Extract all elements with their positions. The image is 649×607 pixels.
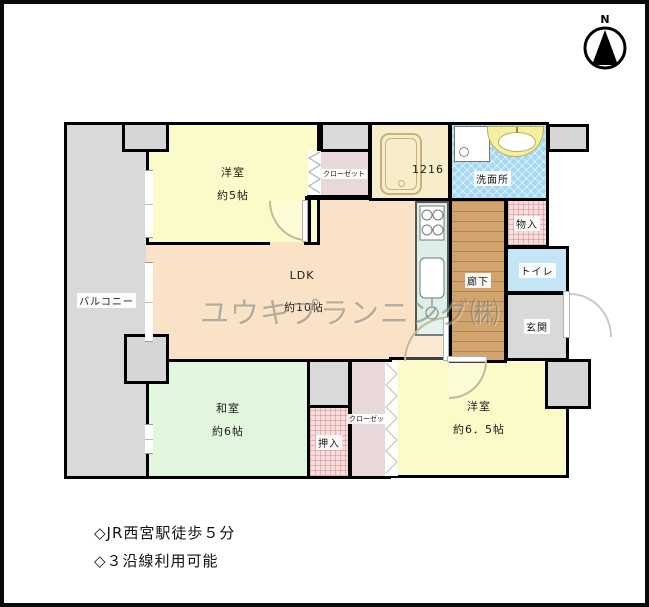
entrance-door-leaf: [563, 291, 570, 338]
pillar-top: [320, 122, 371, 152]
room-hallway: 廊下: [449, 198, 507, 363]
bath-size-label: 1216: [412, 163, 444, 176]
pillar-bottomright: [545, 359, 591, 409]
floorplan-canvas: N バルコニー LDK 約10帖 洋室 約5帖 和室 約6帖 洋室 約6．5帖 …: [0, 0, 649, 607]
door-opening: [270, 242, 304, 245]
note-station: ◇JR西宮駅徒歩５分: [94, 519, 235, 547]
door-swing-entrance: [570, 293, 612, 337]
watermark: ユウキプランニング㈱: [200, 290, 500, 332]
property-notes: ◇JR西宮駅徒歩５分 ◇３沿線利用可能: [94, 519, 235, 575]
japanese-room-size: 約6帖: [212, 423, 244, 439]
accordion-door-icon: [308, 151, 321, 196]
balcony-label: バルコニー: [77, 293, 136, 308]
entrance-label: 玄関: [524, 319, 550, 334]
accordion-door-icon: [385, 362, 398, 476]
toilet-label: トイレ: [519, 263, 556, 278]
bedroom-south-size: 約6．5帖: [453, 421, 505, 437]
window: [145, 170, 153, 238]
wall: [307, 195, 371, 200]
pillar-topright: [547, 124, 589, 152]
room-washroom: 洗面所: [449, 122, 549, 201]
room-bath: 1216: [369, 122, 451, 201]
bedroom-west-size: 約5帖: [217, 187, 249, 203]
window: [145, 424, 153, 454]
washing-machine-icon: [454, 126, 490, 162]
room-oshiire: 押入: [307, 405, 351, 479]
vanity-sink-icon: [487, 126, 544, 157]
compass-north-icon: N: [579, 12, 631, 74]
closet-north-label: クローゼット: [321, 169, 367, 179]
note-lines: ◇３沿線利用可能: [94, 547, 235, 575]
window: [145, 262, 153, 342]
washroom-label: 洗面所: [474, 171, 511, 186]
ldk-label: LDK: [262, 269, 342, 282]
room-entrance: 玄関: [505, 292, 569, 361]
oshiire-label: 押入: [316, 435, 342, 450]
room-toilet: トイレ: [505, 246, 569, 294]
pillar-topleft: [122, 122, 169, 152]
closet-north: クローゼット: [320, 149, 371, 198]
bedroom-south-label: 洋室: [467, 398, 491, 414]
storage-label: 物入: [514, 216, 540, 231]
hallway-label: 廊下: [465, 273, 491, 288]
room-storage: 物入: [505, 198, 549, 248]
pillar-oshiire-top: [307, 359, 351, 408]
room-japanese: 和室 約6帖: [146, 359, 310, 479]
japanese-room-label: 和室: [216, 400, 240, 416]
door-leaf: [302, 200, 308, 242]
compass-n-label: N: [600, 13, 609, 26]
bedroom-west-label: 洋室: [221, 164, 245, 180]
room-balcony: バルコニー: [64, 122, 149, 479]
